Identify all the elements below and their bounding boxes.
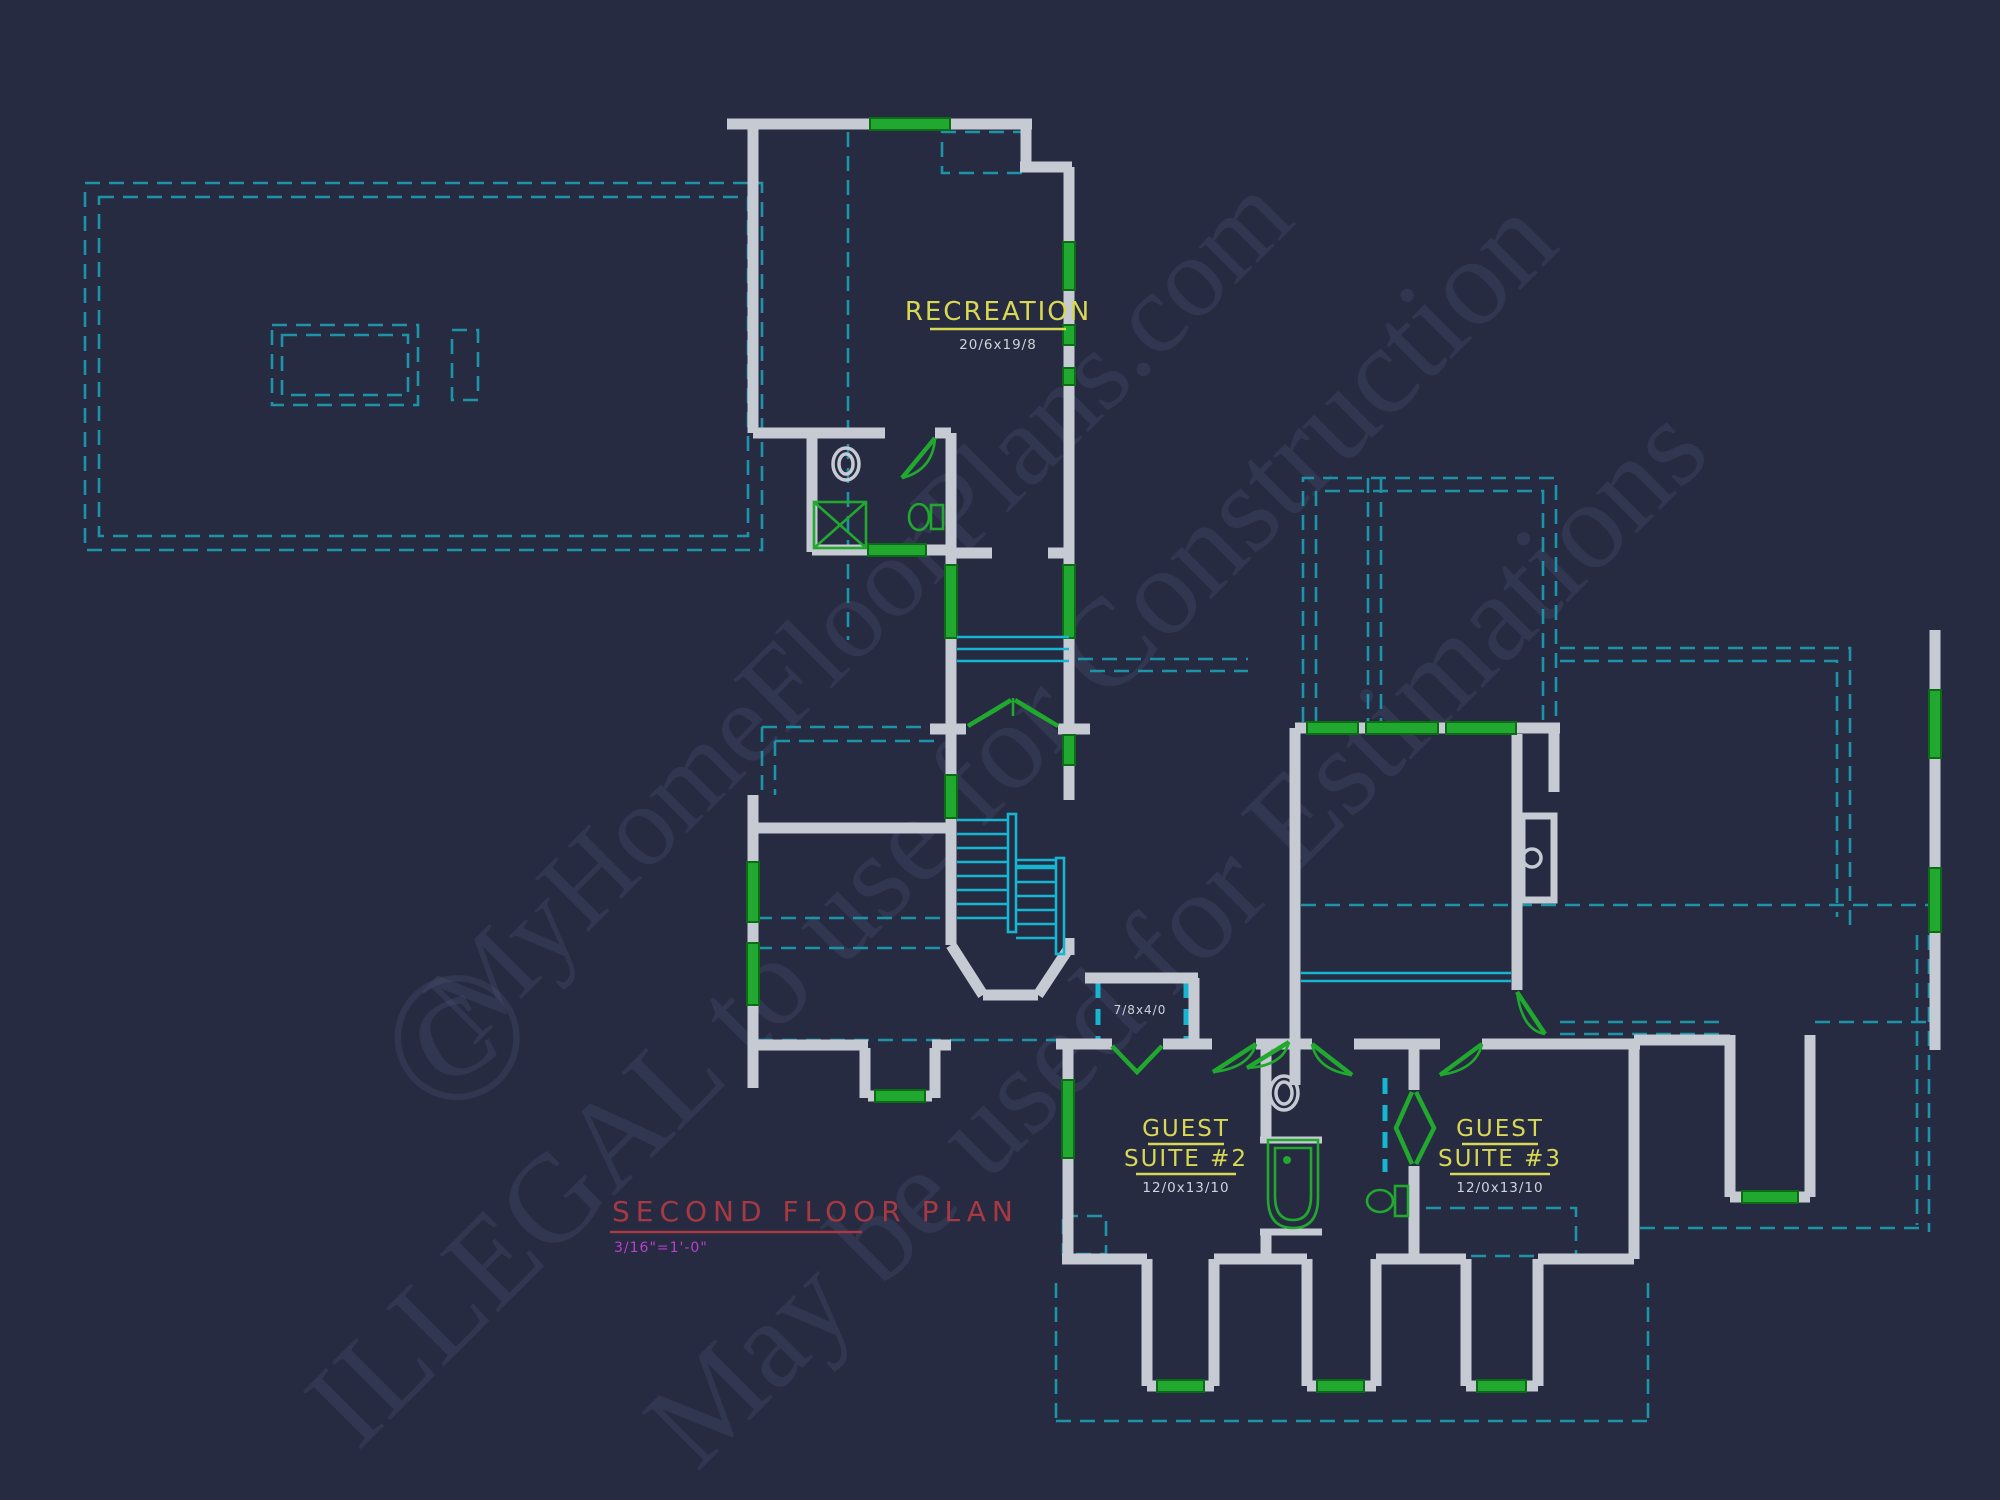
recreation-label: RECREATION <box>905 297 1091 327</box>
window <box>1477 1380 1526 1392</box>
roof-dashed-line <box>282 335 408 395</box>
wall-segment <box>1466 1259 1538 1386</box>
toilet-icon <box>1367 1186 1408 1216</box>
stair-rail <box>1056 858 1064 954</box>
window <box>945 565 957 638</box>
roof-dashed-line <box>452 330 478 400</box>
window <box>1063 368 1075 385</box>
window <box>868 544 926 556</box>
bifold-door <box>1396 1092 1434 1164</box>
window <box>945 775 957 818</box>
sink-icon <box>833 448 859 480</box>
guest-suite-3-dims: 12/0x13/10 <box>1456 1180 1543 1196</box>
wall-segment <box>1147 1259 1214 1386</box>
roof-dashed-line <box>1560 648 1850 930</box>
sink-icon <box>1270 1076 1298 1110</box>
stair-landing-line <box>1016 860 1056 866</box>
stair-tread <box>1016 868 1056 938</box>
roof-dashed-line <box>1640 935 1929 1232</box>
fireplace-niche <box>1522 816 1554 900</box>
floor-plan-drawing: © MyHomeFloorPlans.com ILLEGAL to use fo… <box>0 0 2000 1500</box>
window <box>1063 565 1075 638</box>
window <box>1446 722 1516 734</box>
guest-suite-3-label-line1: GUEST <box>1456 1116 1544 1142</box>
roof-dashed-line <box>99 197 748 536</box>
window <box>747 943 759 1005</box>
hall-closet-dims: 7/8x4/0 <box>1114 1003 1167 1017</box>
bathtub-icon <box>1268 1140 1318 1228</box>
cad-floor-plan-canvas: © MyHomeFloorPlans.com ILLEGAL to use fo… <box>0 0 2000 1500</box>
window <box>1157 1380 1204 1392</box>
window <box>1742 1191 1798 1203</box>
recreation-dims: 20/6x19/8 <box>959 337 1037 353</box>
guest-suite-2-label-line1: GUEST <box>1142 1116 1230 1142</box>
roof-dashed-line <box>1426 1208 1576 1256</box>
window <box>1307 722 1358 734</box>
window <box>1317 1380 1364 1392</box>
roof-dashed-line <box>942 132 1028 173</box>
guest-suite-2-label-line2: SUITE #2 <box>1124 1146 1248 1172</box>
window <box>870 118 950 130</box>
drain-dot <box>1283 1156 1291 1164</box>
window <box>1929 868 1941 932</box>
window <box>747 862 759 922</box>
window <box>1062 1080 1074 1158</box>
window <box>1366 722 1438 734</box>
window <box>1063 735 1075 765</box>
wall-segment <box>1307 1259 1376 1386</box>
plan-title: SECOND FLOOR PLAN <box>612 1195 1019 1228</box>
window <box>875 1090 925 1102</box>
guest-suite-3-label-line2: SUITE #3 <box>1438 1146 1562 1172</box>
wall-segment <box>1020 124 1072 172</box>
plan-scale: 3/16"=1'-0" <box>614 1240 708 1256</box>
roof-dashed-line <box>272 325 418 405</box>
wall-segment <box>1634 1035 1810 1197</box>
roof-dashed-line <box>1560 1022 1930 1034</box>
flue-circle-icon <box>1523 849 1541 867</box>
window <box>1929 690 1941 758</box>
window <box>1063 242 1075 290</box>
guest-suite-2-dims: 12/0x13/10 <box>1142 1180 1229 1196</box>
roof-dashed-line <box>85 183 762 550</box>
overlook-railing <box>1301 973 1511 981</box>
